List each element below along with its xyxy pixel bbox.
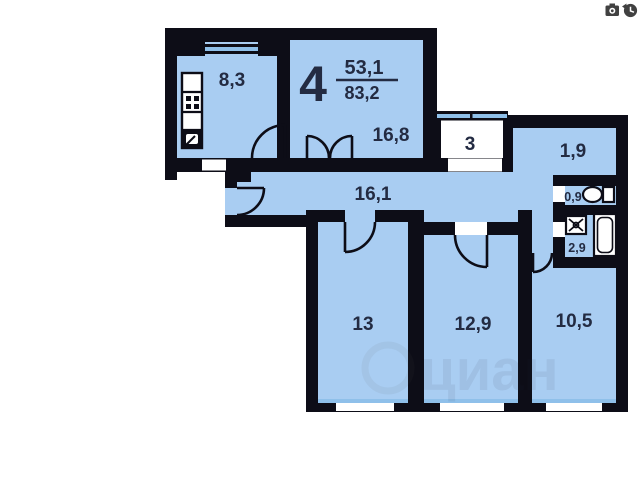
window [546, 403, 602, 411]
camera-icon [606, 4, 620, 17]
balcony-opening [448, 159, 502, 172]
history-icon [622, 4, 637, 18]
bedroom1-area-label: 13 [352, 314, 373, 335]
kitchen-fixtures [182, 73, 202, 148]
kitchen-doorway-opening [202, 160, 226, 171]
floor-plan-svg: циан 8,3 4 53,1 83,2 16,8 3 1,9 16,1 0,9… [0, 0, 640, 480]
kitchen-area-label: 8,3 [219, 70, 245, 91]
washbasin-icon [566, 216, 586, 234]
bedroom3-area-label: 10,5 [556, 311, 593, 332]
window-glass [205, 47, 258, 51]
window [440, 403, 504, 411]
floor-plan-image: циан 8,3 4 53,1 83,2 16,8 3 1,9 16,1 0,9… [0, 0, 640, 480]
toilet-icon [583, 187, 614, 202]
corridor-area-label: 16,1 [355, 184, 392, 205]
window-frame [205, 44, 258, 47]
watermark-text: циан [420, 338, 559, 403]
living-room-area-label: 16,8 [373, 125, 410, 146]
balcony-window-mullion [470, 111, 473, 120]
hall-nook-area-label: 1,9 [560, 141, 586, 162]
overlay-icons [606, 4, 638, 18]
rooms-count-label: 4 [299, 56, 327, 112]
wc-area-label: 0,9 [564, 190, 581, 204]
living-area-label: 53,1 [345, 57, 384, 79]
bathtub-icon [594, 214, 616, 256]
window [336, 403, 394, 411]
bathroom-area-label: 2,9 [568, 241, 585, 255]
total-area-label: 83,2 [344, 83, 379, 103]
window-frame [205, 51, 258, 54]
balcony-label: 3 [465, 134, 476, 155]
kitchen-window [205, 44, 258, 54]
sink-icon [182, 130, 202, 148]
bedroom2-area-label: 12,9 [455, 314, 492, 335]
window-sill [318, 399, 408, 403]
